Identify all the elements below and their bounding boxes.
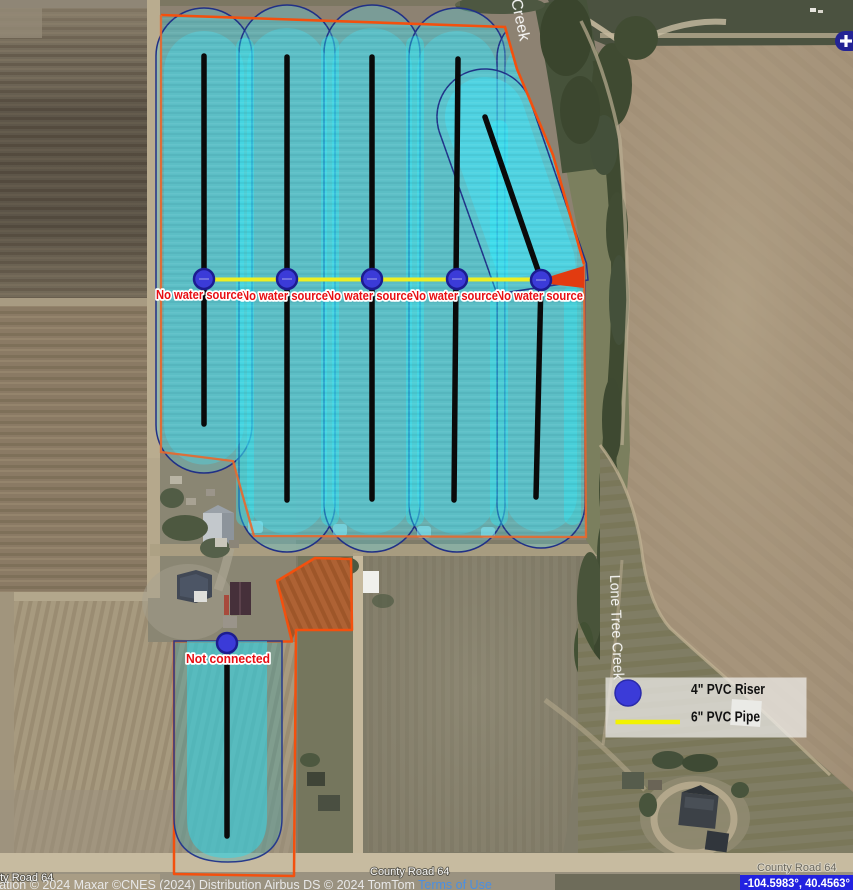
svg-text:No water source: No water source [496, 288, 583, 303]
svg-text:No water source: No water source [156, 287, 243, 302]
svg-text:No water source: No water source [326, 288, 413, 303]
svg-text:No water source: No water source [241, 288, 328, 303]
svg-text:Not connected: Not connected [186, 651, 270, 666]
svg-text:County Road 64: County Road 64 [757, 862, 837, 874]
svg-text:4" PVC Riser: 4" PVC Riser [691, 682, 765, 698]
svg-text:oration © 2024 Maxar ©CNES (20: oration © 2024 Maxar ©CNES (2024) Distri… [0, 878, 492, 890]
svg-text:6" PVC Pipe: 6" PVC Pipe [691, 710, 760, 726]
svg-text:-104.5983°, 40.4563°: -104.5983°, 40.4563° [744, 876, 850, 890]
svg-text:No water source: No water source [411, 288, 498, 303]
svg-text:County Road 64: County Road 64 [370, 866, 450, 878]
